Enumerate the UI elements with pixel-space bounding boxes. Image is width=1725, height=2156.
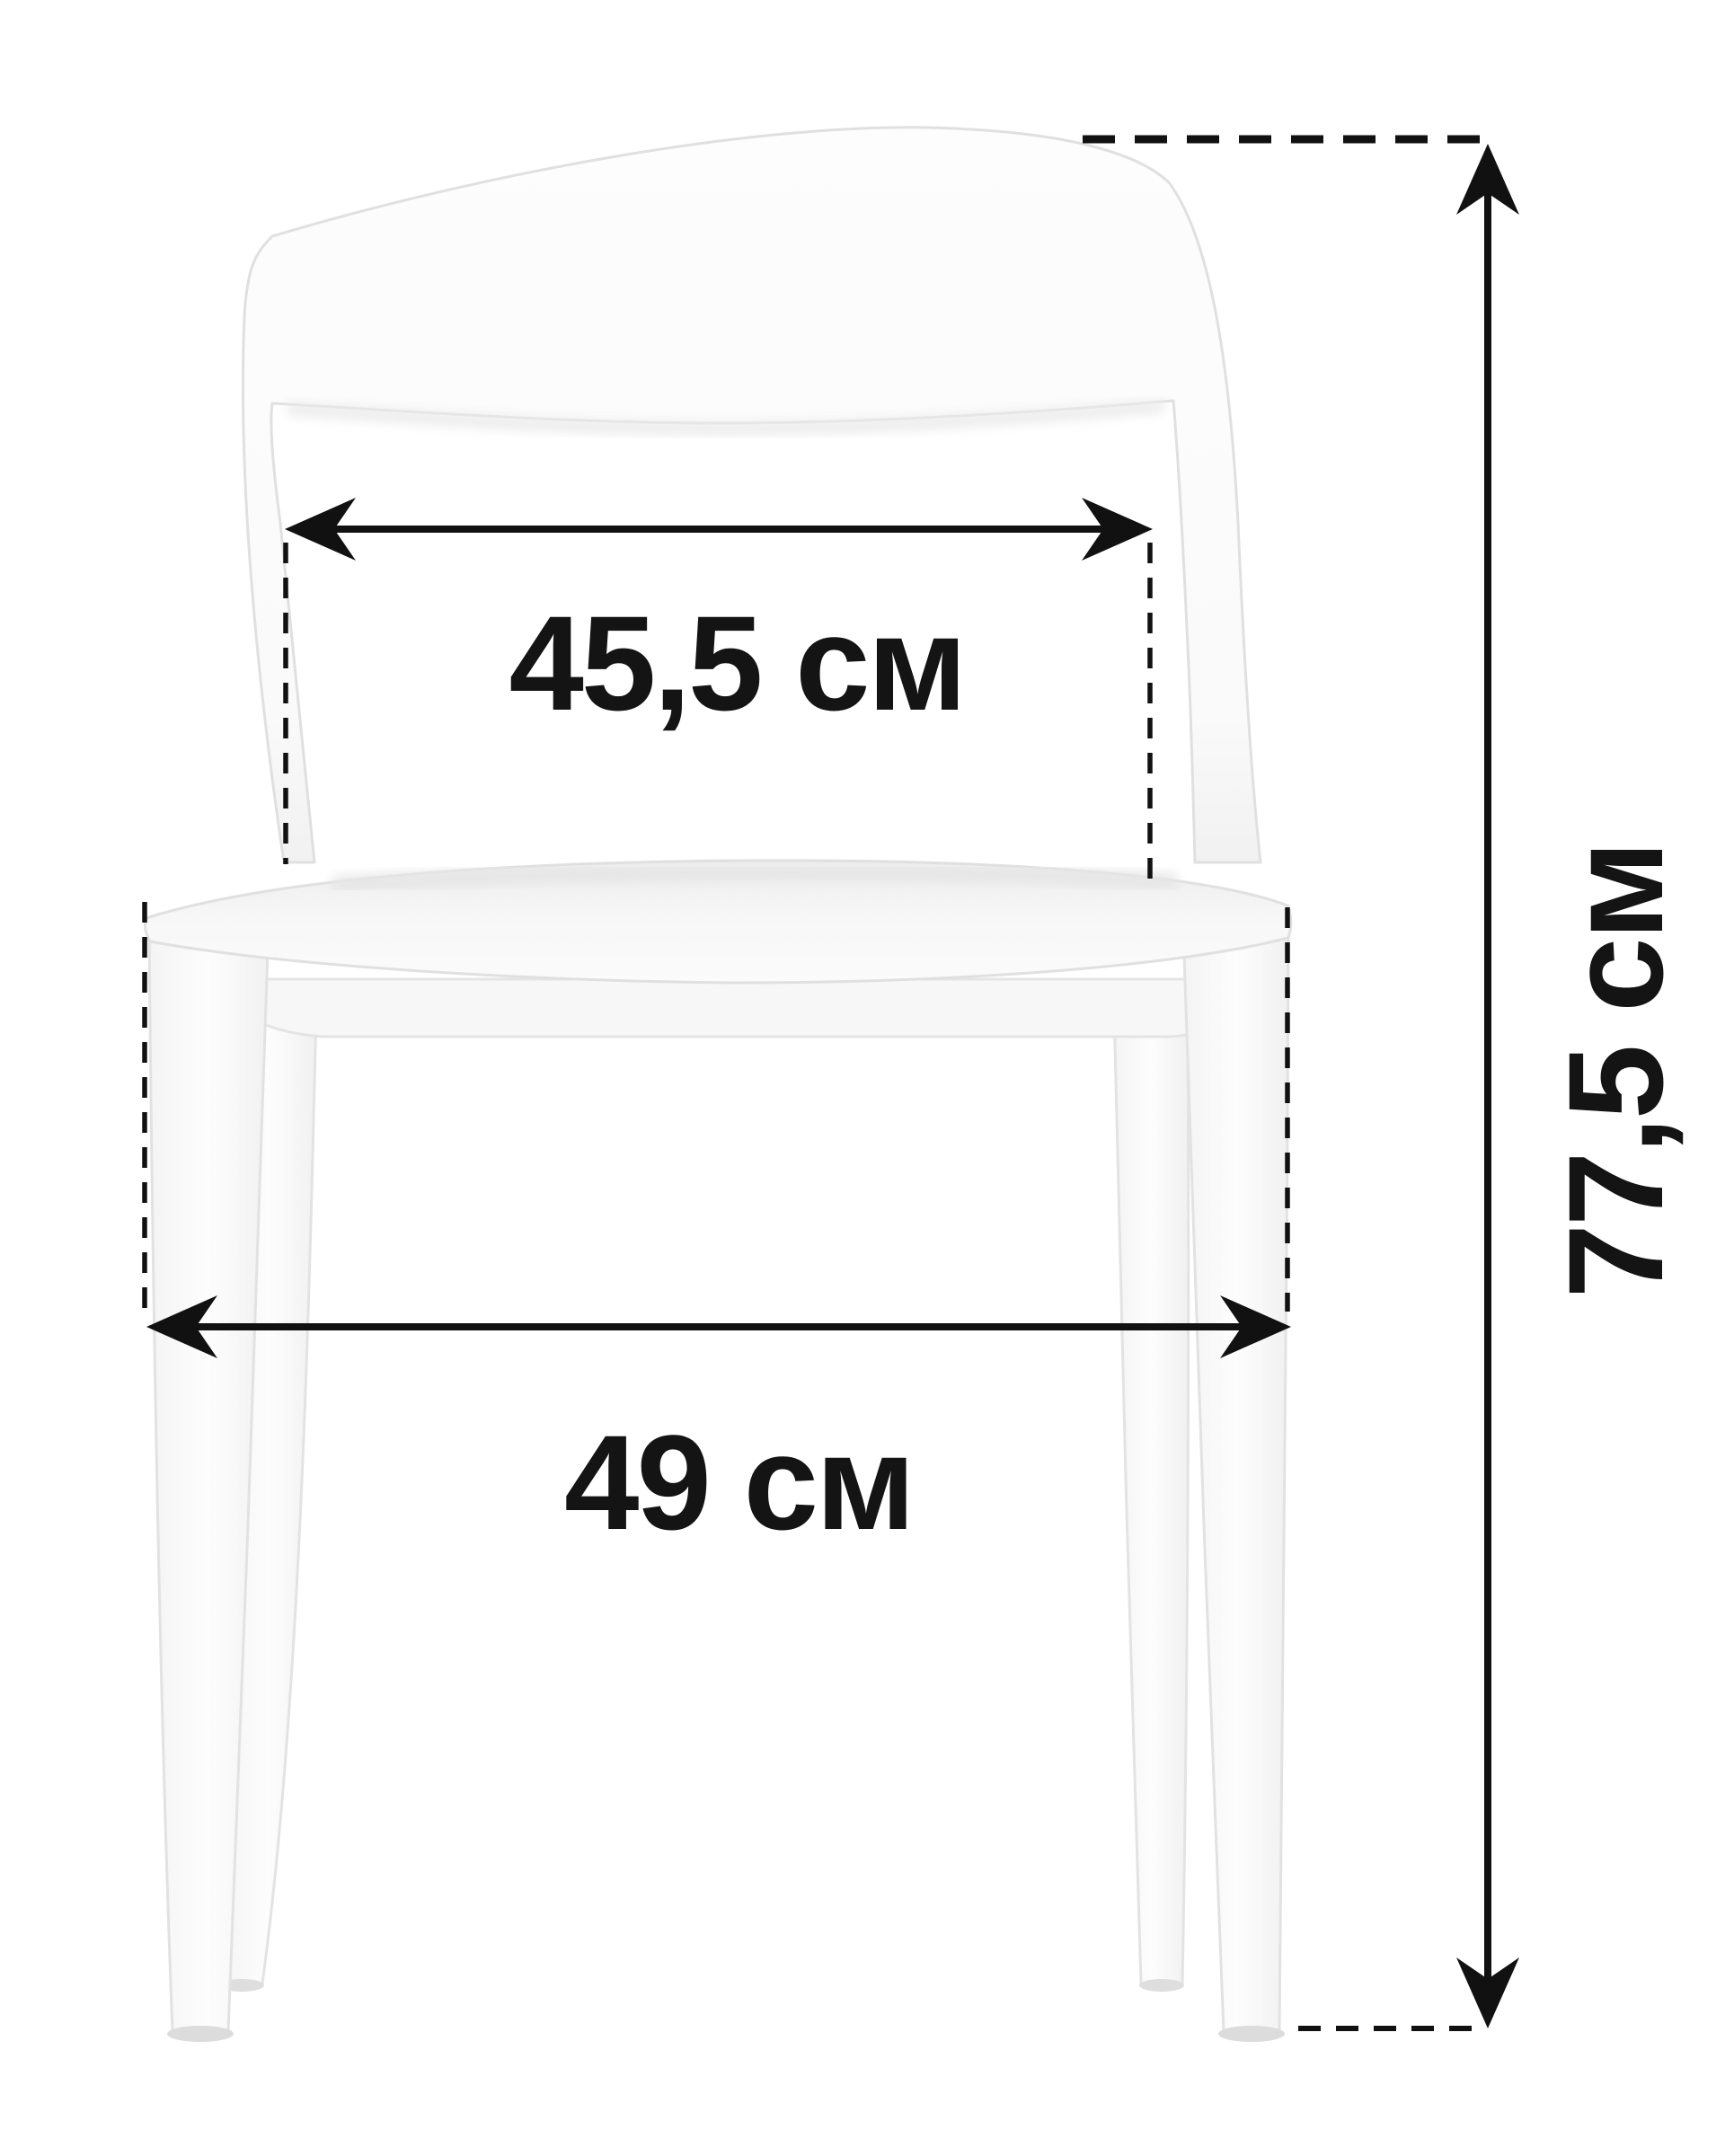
overall-height-label: 77,5 см	[1540, 843, 1691, 1298]
chair-leg-front-right	[1184, 936, 1288, 2032]
foot-pad-front-right	[1218, 2026, 1285, 2042]
product-dimension-diagram: 45,5 см 49 см 77,5 см	[0, 0, 1725, 2156]
chair-backrest	[243, 128, 1261, 862]
chair-illustration	[145, 128, 1291, 2042]
overall-width-label: 49 см	[564, 1407, 913, 1558]
seat-width-label: 45,5 см	[509, 588, 964, 738]
foot-pad-front-left	[167, 2026, 234, 2042]
chair-leg-back-right	[1114, 1008, 1189, 1984]
chair-apron	[216, 979, 1256, 1037]
foot-pad-back-right	[1139, 1979, 1184, 1992]
dimension-seat-width: 45,5 см	[285, 498, 1153, 888]
